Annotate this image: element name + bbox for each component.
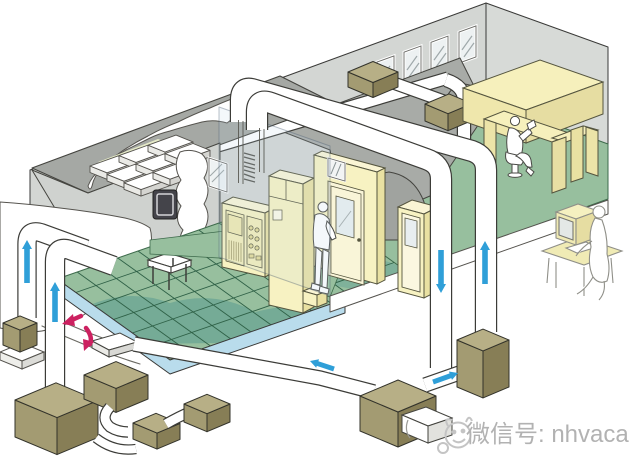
svg-text:微信号: nhvaca: 微信号: nhvaca [466,421,629,448]
